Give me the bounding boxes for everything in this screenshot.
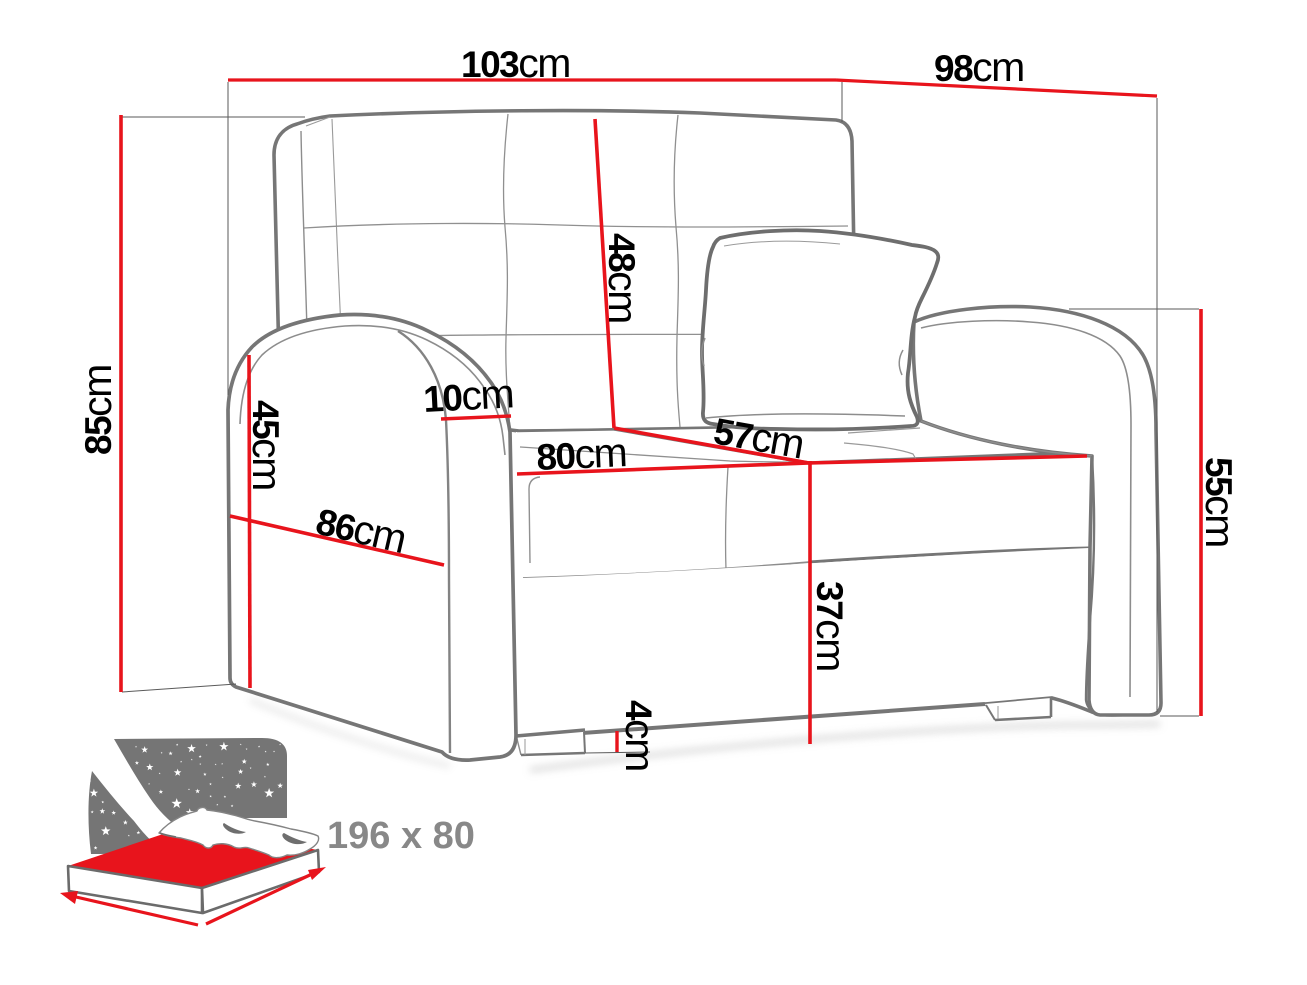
- svg-text:85cm: 85cm: [74, 365, 120, 455]
- svg-text:98cm: 98cm: [934, 44, 1024, 90]
- svg-text:55cm: 55cm: [1197, 457, 1243, 547]
- svg-text:4cm: 4cm: [617, 700, 663, 771]
- svg-text:48cm: 48cm: [600, 233, 646, 323]
- svg-text:196 x 80: 196 x 80: [327, 815, 475, 857]
- svg-text:37cm: 37cm: [808, 581, 854, 671]
- svg-text:80cm: 80cm: [535, 429, 627, 479]
- svg-text:10cm: 10cm: [422, 370, 514, 421]
- svg-text:103cm: 103cm: [461, 40, 570, 86]
- svg-text:45cm: 45cm: [244, 400, 290, 490]
